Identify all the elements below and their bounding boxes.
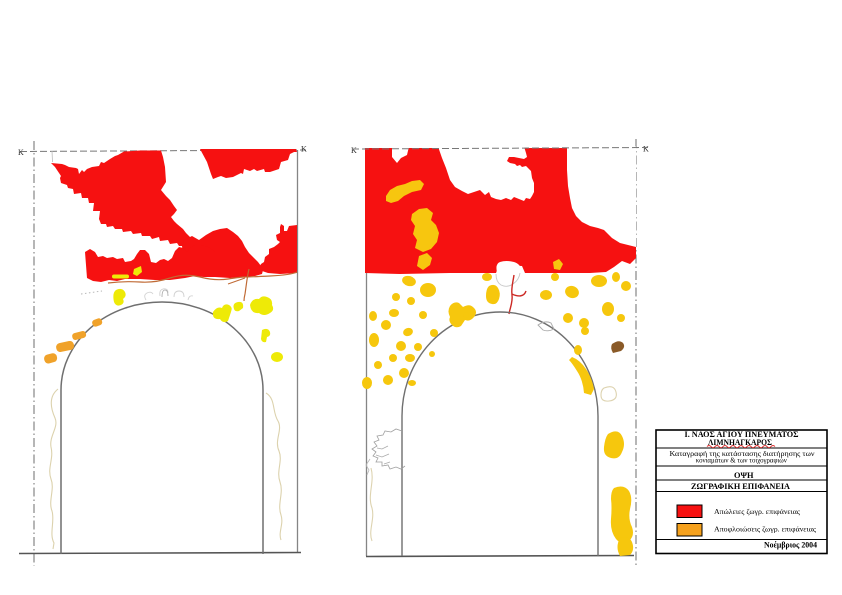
svg-text:K: K	[301, 145, 307, 154]
svg-text:Απώλειες ζωγρ. επιφάνειας: Απώλειες ζωγρ. επιφάνειας	[714, 507, 800, 516]
svg-text:Νοέμβριος 2004: Νοέμβριος 2004	[764, 540, 817, 549]
svg-text:K: K	[643, 145, 649, 154]
svg-text:ΟΨΗ: ΟΨΗ	[734, 470, 754, 480]
svg-text:Αποφλοιώσεις ζωγρ. επιφάνειας: Αποφλοιώσεις ζωγρ. επιφάνειας	[714, 525, 816, 534]
svg-text:K: K	[351, 146, 357, 155]
svg-text:ΖΩΓΡΑΦΙΚΗ ΕΠΙΦΑΝΕΙΑ: ΖΩΓΡΑΦΙΚΗ ΕΠΙΦΑΝΕΙΑ	[691, 481, 791, 491]
svg-text:κονιαμάτων & των τοιχογραφιών: κονιαμάτων & των τοιχογραφιών	[696, 455, 788, 464]
svg-text:K: K	[18, 148, 24, 157]
